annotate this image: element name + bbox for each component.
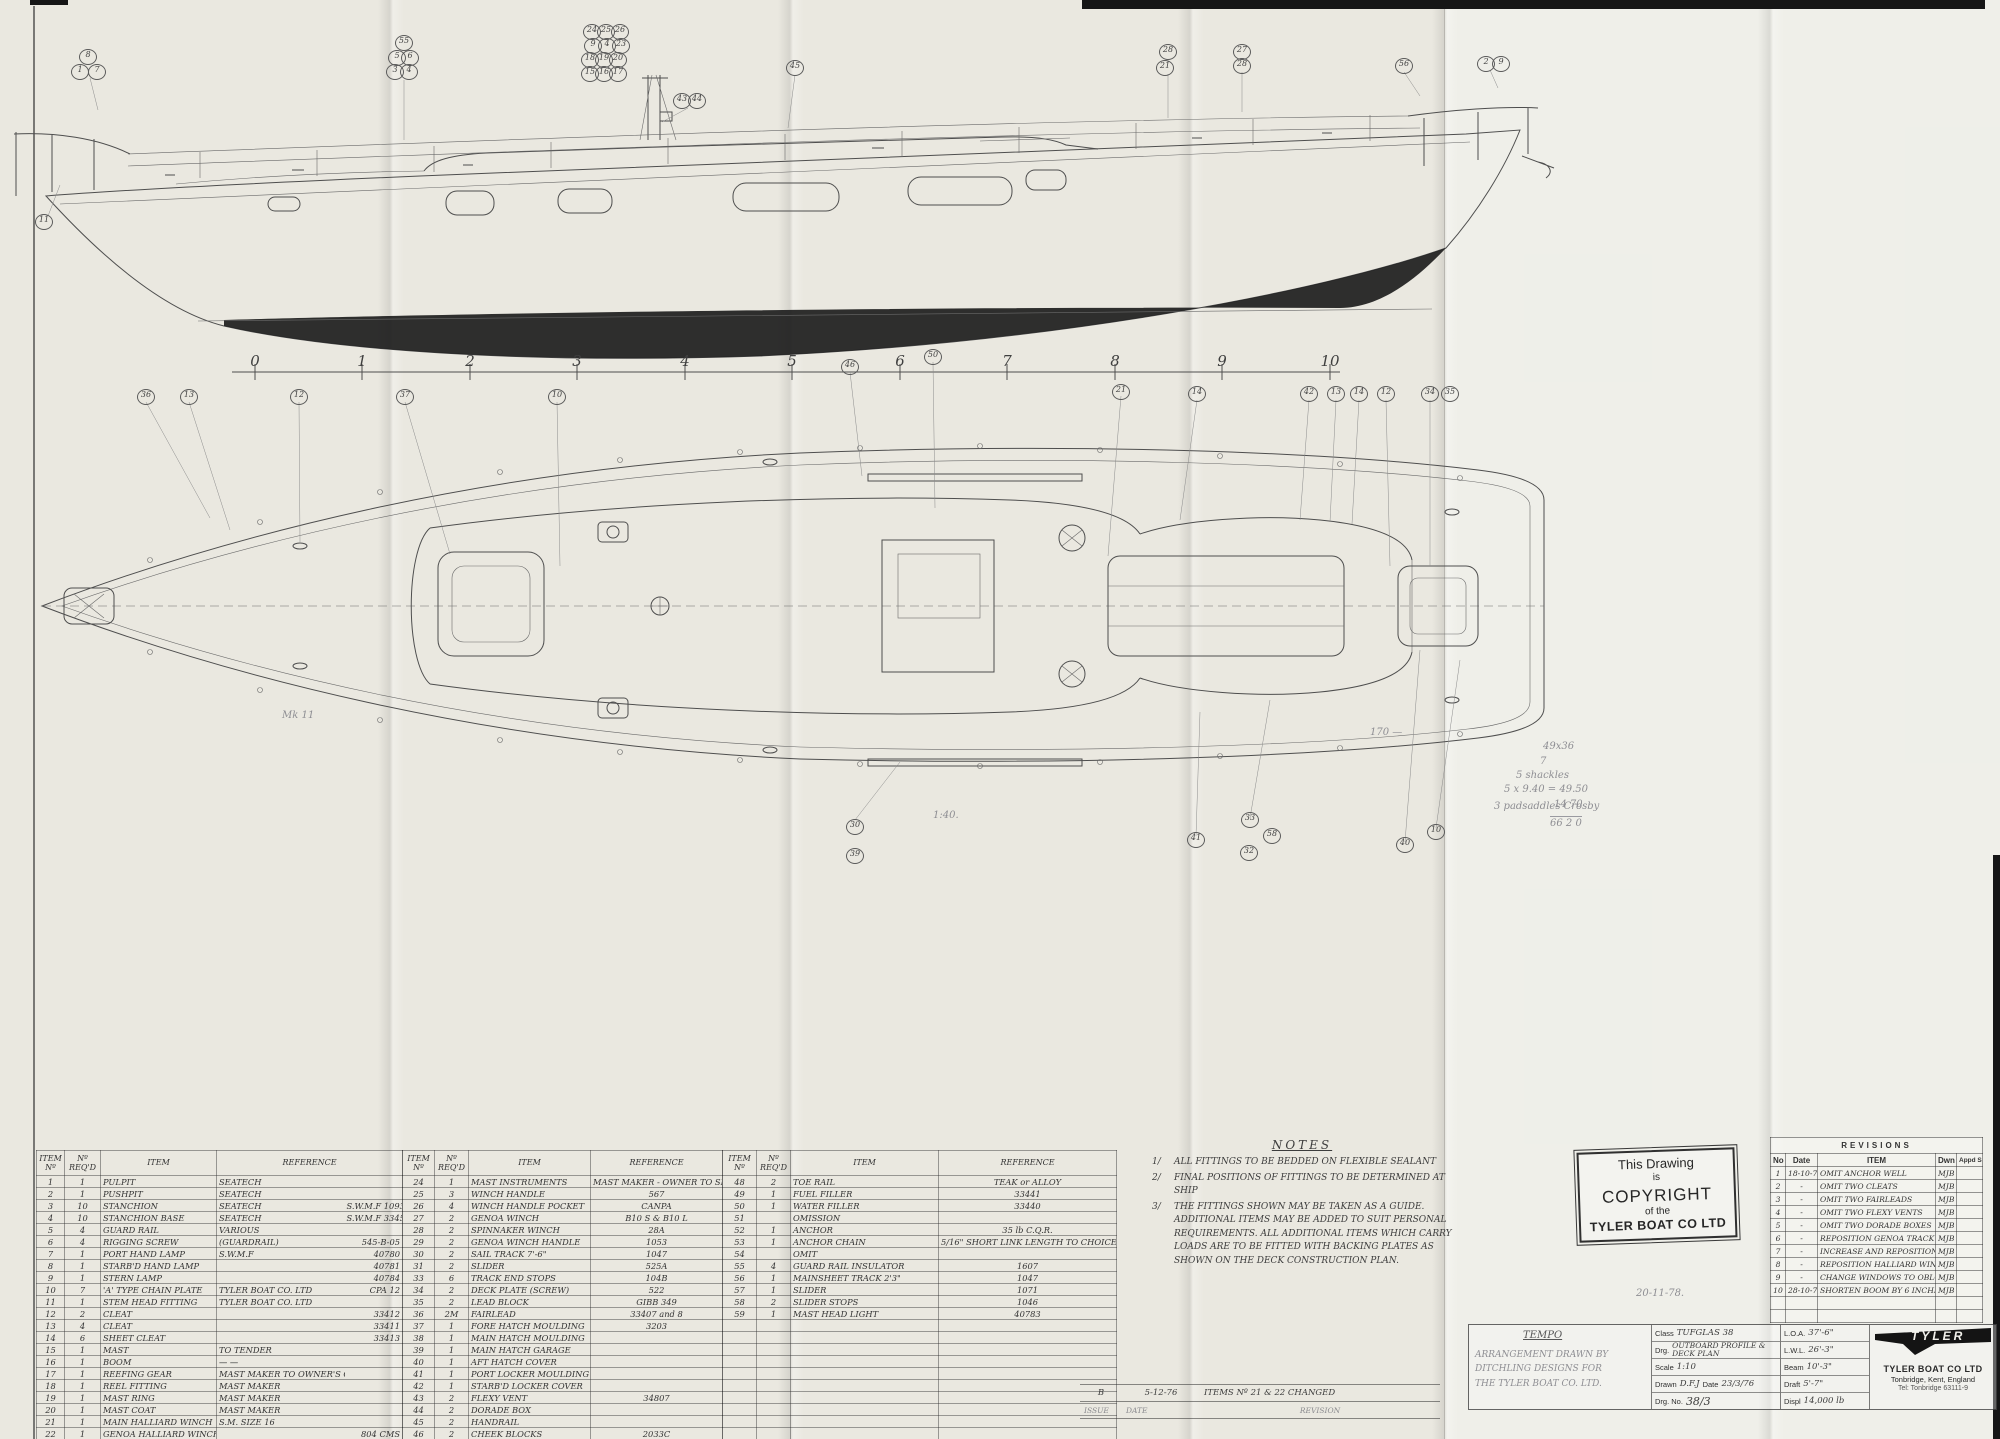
- cell-item-no: 40: [403, 1356, 435, 1368]
- rev-cell-dwn: MJB: [1936, 1219, 1957, 1232]
- cell-item-no: [723, 1416, 757, 1428]
- cell-item: [791, 1320, 939, 1332]
- cell-reference: SEATECH: [217, 1176, 345, 1188]
- cell-qty: [757, 1368, 791, 1380]
- cell-reference: S.W.M.F: [217, 1248, 345, 1260]
- date-label: Date: [1703, 1380, 1719, 1389]
- cell-item: ANCHOR CHAIN: [791, 1236, 939, 1248]
- table-row: [723, 1428, 1117, 1439]
- cell-item-no: 41: [403, 1368, 435, 1380]
- cell-item-no: 7: [37, 1248, 65, 1260]
- revision-row: 3 - OMIT TWO FAIRLEADS MJB: [1771, 1193, 1983, 1206]
- revision-row: 9 - CHANGE WINDOWS TO OBLONG TYPE MJB: [1771, 1271, 1983, 1284]
- notes-section: NOTES 1/ ALL FITTINGS TO BE BEDDED ON FL…: [1152, 1138, 1452, 1270]
- cell-qty: 1: [757, 1200, 791, 1212]
- rev-cell-no: 1: [1771, 1167, 1786, 1180]
- table-row: 54 OMIT: [723, 1248, 1117, 1260]
- balloon-callout: 8: [79, 49, 97, 65]
- cell-reference: [939, 1212, 1117, 1224]
- cell-qty: 1: [65, 1188, 101, 1200]
- rev-cell-no: 10: [1771, 1284, 1786, 1297]
- ruler-number: 7: [1002, 352, 1012, 370]
- balloon-callout: 28: [1159, 44, 1177, 60]
- cell-item: MAST COAT: [101, 1404, 217, 1416]
- note-text: ALL FITTINGS TO BE BEDDED ON FLEXIBLE SE…: [1174, 1156, 1436, 1170]
- pencil-note: 5 shackles: [1516, 770, 1569, 781]
- cell-item-no: [723, 1428, 757, 1439]
- cell-item-no: [723, 1404, 757, 1416]
- cell-qty: 1: [757, 1272, 791, 1284]
- cell-qty: 3: [435, 1188, 469, 1200]
- cell-item-no: 59: [723, 1308, 757, 1320]
- revisions-title: REVISIONS: [1771, 1138, 1983, 1154]
- rev-cell-appd: [1957, 1180, 1983, 1193]
- table-row: 46 2 CHEEK BLOCKS 2033C: [403, 1428, 723, 1439]
- cell-item: GENOA WINCH: [469, 1212, 591, 1224]
- rev-col-item: ITEM: [1818, 1154, 1936, 1167]
- deck-plan-drawing: [0, 350, 1560, 890]
- table-row: 16 1 BOOM — —: [37, 1356, 403, 1368]
- cell-qty: 2: [435, 1416, 469, 1428]
- cell-item-no: 10: [37, 1284, 65, 1296]
- cell-item-no: 26: [403, 1200, 435, 1212]
- cell-qty: 1: [435, 1356, 469, 1368]
- col-header-item: ITEM: [101, 1151, 217, 1176]
- cell-reference: 525A: [591, 1260, 723, 1272]
- ruler-number: 9: [1217, 352, 1227, 370]
- balloon-callout: 39: [846, 848, 864, 864]
- table-row: 45 2 HANDRAIL: [403, 1416, 723, 1428]
- rev-cell-no: 4: [1771, 1206, 1786, 1219]
- cell-qty: 1: [65, 1344, 101, 1356]
- table-row: 53 1 ANCHOR CHAIN 5/16" SHORT LINK LENGT…: [723, 1236, 1117, 1248]
- cell-reference-no: [345, 1416, 403, 1428]
- cell-item: SLIDER: [791, 1284, 939, 1296]
- draft-value: 5'-7": [1803, 1379, 1823, 1389]
- table-row: 31 2 SLIDER 525A: [403, 1260, 723, 1272]
- cell-item: GUARD RAIL: [101, 1224, 217, 1236]
- revision-row: 4 - OMIT TWO FLEXY VENTS MJB: [1771, 1206, 1983, 1219]
- ruler-number: 4: [680, 352, 690, 370]
- table-row: 20 1 MAST COAT MAST MAKER: [37, 1404, 403, 1416]
- cell-qty: 1: [65, 1392, 101, 1404]
- table-row: [723, 1392, 1117, 1404]
- cell-qty: [757, 1404, 791, 1416]
- lwl-value: 26'-3": [1808, 1345, 1833, 1355]
- cell-qty: [757, 1344, 791, 1356]
- cell-reference-no: [345, 1296, 403, 1308]
- cell-item-no: 45: [403, 1416, 435, 1428]
- cell-reference-no: 33412: [345, 1308, 403, 1320]
- table-header-row: ITEM Nº Nº REQ'D ITEM REFERENCE: [403, 1151, 723, 1176]
- note-line: 2/ FINAL POSITIONS OF FITTINGS TO BE DET…: [1152, 1172, 1452, 1199]
- cell-qty: 1: [65, 1260, 101, 1272]
- table-row: [723, 1320, 1117, 1332]
- title-block-project-cell: TEMPO ARRANGEMENT DRAWN BYDITCHLING DESI…: [1469, 1325, 1652, 1409]
- rev-cell-date: -: [1786, 1206, 1818, 1219]
- cell-item-no: 48: [723, 1176, 757, 1188]
- cell-qty: 4: [65, 1320, 101, 1332]
- pencil-note: 1:40.: [933, 810, 959, 821]
- cell-reference-no: [345, 1188, 403, 1200]
- draft-row: Draft 5'-7": [1781, 1376, 1869, 1393]
- cell-qty: 2: [435, 1404, 469, 1416]
- item-table-1: ITEM Nº Nº REQ'D ITEM REFERENCE 1 1 PULP…: [36, 1150, 403, 1439]
- rev-cell-item: OMIT TWO FAIRLEADS: [1818, 1193, 1936, 1206]
- rev-cell-appd: [1957, 1206, 1983, 1219]
- cell-reference: VARIOUS: [217, 1224, 345, 1236]
- cell-item: MAST: [101, 1344, 217, 1356]
- cell-qty: 1: [757, 1308, 791, 1320]
- cell-reference-no: [345, 1368, 403, 1380]
- pencil-note: 49x36: [1543, 741, 1574, 752]
- table-row: 51 OMISSION: [723, 1212, 1117, 1224]
- rev-cell-dwn: [1936, 1310, 1957, 1323]
- cell-item: PUSHPIT: [101, 1188, 217, 1200]
- cell-item: STERN LAMP: [101, 1272, 217, 1284]
- cell-item-no: 30: [403, 1248, 435, 1260]
- cell-reference: (GUARDRAIL): [217, 1236, 345, 1248]
- rev-cell-date: -: [1786, 1271, 1818, 1284]
- cell-item: CLEAT: [101, 1320, 217, 1332]
- cell-qty: 1: [435, 1380, 469, 1392]
- cell-qty: [757, 1416, 791, 1428]
- cell-qty: [757, 1428, 791, 1439]
- cell-item: [791, 1380, 939, 1392]
- profile-view-drawing: [0, 20, 1560, 360]
- table-row: [723, 1344, 1117, 1356]
- balloon-callout: 12: [1377, 386, 1395, 402]
- balloon-callout: 56: [1395, 58, 1413, 74]
- rev-cell-date: -: [1786, 1219, 1818, 1232]
- cell-item-no: 21: [37, 1416, 65, 1428]
- issue-values-row: B 5-12-76 ITEMS Nº 21 & 22 CHANGED: [1080, 1385, 1440, 1402]
- note-number: 1/: [1152, 1156, 1166, 1170]
- class-value: TUFGLAS 38: [1677, 1328, 1734, 1338]
- cell-item: [791, 1416, 939, 1428]
- balloon-callout: 4: [400, 64, 418, 80]
- pencil-note: 5 x 9.40 = 49.50: [1504, 784, 1588, 795]
- drawn-label: Drawn: [1655, 1380, 1677, 1389]
- balloon-callout: 9: [1492, 56, 1510, 72]
- scale-ruler-numbers: 012345678910: [0, 352, 1560, 372]
- cell-reference: TO TENDER: [217, 1344, 345, 1356]
- cell-qty: 2M: [435, 1308, 469, 1320]
- rev-col-appd: Appd S A: [1957, 1154, 1983, 1167]
- cell-qty: 1: [65, 1428, 101, 1439]
- ruler-number: 2: [465, 352, 475, 370]
- table-row: 5 4 GUARD RAIL VARIOUS: [37, 1224, 403, 1236]
- cell-item: AFT HATCH COVER: [469, 1356, 591, 1368]
- cell-qty: 1: [757, 1224, 791, 1236]
- cell-reference: [217, 1260, 345, 1272]
- table-row: 36 2M FAIRLEAD 33407 and 8: [403, 1308, 723, 1320]
- cell-item-no: 6: [37, 1236, 65, 1248]
- cell-reference: 1071: [939, 1284, 1117, 1296]
- cell-reference: 33441: [939, 1188, 1117, 1200]
- cell-reference: [939, 1368, 1117, 1380]
- rev-cell-dwn: MJB: [1936, 1180, 1957, 1193]
- ruler-number: 8: [1110, 352, 1120, 370]
- rev-cell-item: REPOSITION GENOA TRACK: [1818, 1232, 1936, 1245]
- beam-label: Beam: [1784, 1363, 1804, 1372]
- cell-item: MAST HEAD LIGHT: [791, 1308, 939, 1320]
- balloon-callout: 44: [688, 93, 706, 109]
- cell-item-no: 4: [37, 1212, 65, 1224]
- col-header-item-no: ITEM Nº: [723, 1151, 757, 1176]
- cell-item-no: 28: [403, 1224, 435, 1236]
- cell-reference: 34807: [591, 1392, 723, 1404]
- ruler-number: 1: [357, 352, 367, 370]
- cell-qty: 10: [65, 1200, 101, 1212]
- cell-item-no: 5: [37, 1224, 65, 1236]
- rev-cell-date: 18-10-71: [1786, 1167, 1818, 1180]
- pencil-note: 14 70: [1554, 799, 1583, 810]
- cell-qty: 4: [757, 1260, 791, 1272]
- cell-item: FLEXY VENT: [469, 1392, 591, 1404]
- cell-reference: MAST MAKER: [217, 1392, 345, 1404]
- table-row: 33 6 TRACK END STOPS 104B: [403, 1272, 723, 1284]
- table-row: 44 2 DORADE BOX: [403, 1404, 723, 1416]
- rev-cell-no: 8: [1771, 1258, 1786, 1271]
- loa-value: 37'-6": [1808, 1328, 1833, 1338]
- rev-col-date: Date: [1786, 1154, 1818, 1167]
- rev-cell-item: OMIT TWO DORADE BOXES: [1818, 1219, 1936, 1232]
- cell-reference: [939, 1356, 1117, 1368]
- table-row: 24 1 MAST INSTRUMENTS MAST MAKER - OWNER…: [403, 1176, 723, 1188]
- cell-item: DORADE BOX: [469, 1404, 591, 1416]
- table-row: 48 2 TOE RAIL TEAK or ALLOY: [723, 1176, 1117, 1188]
- rev-cell-item: INCREASE AND REPOSITION STANCH'NS: [1818, 1245, 1936, 1258]
- title-block-company: TYLER TYLER BOAT CO LTD Tonbridge, Kent,…: [1870, 1325, 1996, 1409]
- cell-item: GENOA HALLIARD WINCH: [101, 1428, 217, 1439]
- cell-item-no: 46: [403, 1428, 435, 1439]
- cell-qty: 1: [757, 1236, 791, 1248]
- cell-qty: 6: [65, 1332, 101, 1344]
- drg-no-row: Drg. No. 38/3: [1652, 1393, 1780, 1409]
- rev-cell-no: [1771, 1297, 1786, 1310]
- cell-reference: CANPA: [591, 1200, 723, 1212]
- cell-qty: 2: [435, 1236, 469, 1248]
- cell-reference: 104B: [591, 1272, 723, 1284]
- class-label: Class: [1655, 1329, 1674, 1338]
- cell-reference-no: 545-B-05: [345, 1236, 403, 1248]
- rev-cell-no: 3: [1771, 1193, 1786, 1206]
- balloon-callout: 14: [1350, 386, 1368, 402]
- cell-reference: [217, 1332, 345, 1344]
- revision-row: [1771, 1310, 1983, 1323]
- cell-item-no: 22: [37, 1428, 65, 1439]
- cell-qty: 4: [65, 1224, 101, 1236]
- balloon-callout: 50: [924, 349, 942, 365]
- cell-qty: 6: [435, 1272, 469, 1284]
- drg-row: Drg. OUTBOARD PROFILE & DECK PLAN: [1652, 1342, 1780, 1359]
- table-row: 59 1 MAST HEAD LIGHT 40783: [723, 1308, 1117, 1320]
- cell-item: STANCHION BASE: [101, 1212, 217, 1224]
- balloon-callout: 1: [71, 64, 89, 80]
- cell-item-no: 27: [403, 1212, 435, 1224]
- cell-reference: 1607: [939, 1260, 1117, 1272]
- pencil-note: 7: [1540, 756, 1546, 767]
- revision-row: 5 - OMIT TWO DORADE BOXES MJB: [1771, 1219, 1983, 1232]
- table-row: 17 1 REEFING GEAR MAST MAKER TO OWNER'S …: [37, 1368, 403, 1380]
- col-header-reference: REFERENCE: [217, 1151, 403, 1176]
- cell-item: 'A' TYPE CHAIN PLATE: [101, 1284, 217, 1296]
- company-name: TYLER BOAT CO LTD: [1870, 1364, 1996, 1374]
- balloon-callout: 36: [137, 389, 155, 405]
- cell-item-no: [723, 1368, 757, 1380]
- cell-item: STANCHION: [101, 1200, 217, 1212]
- cell-qty: [757, 1356, 791, 1368]
- issue-date-value: 5-12-76: [1122, 1385, 1200, 1402]
- table-row: 12 2 CLEAT 33412: [37, 1308, 403, 1320]
- balloon-callout: 21: [1112, 384, 1130, 400]
- rev-cell-dwn: MJB: [1936, 1232, 1957, 1245]
- cell-item-no: 50: [723, 1200, 757, 1212]
- rev-cell-appd: [1957, 1271, 1983, 1284]
- cell-reference: [939, 1248, 1117, 1260]
- cell-item-no: 9: [37, 1272, 65, 1284]
- drawing-sheet: 012345678910 817115556342425269423181920…: [0, 0, 2000, 1439]
- rev-cell-no: 2: [1771, 1180, 1786, 1193]
- rev-cell-item: [1818, 1297, 1936, 1310]
- rev-cell-date: -: [1786, 1232, 1818, 1245]
- revisions-title-row: REVISIONS: [1771, 1138, 1983, 1154]
- cell-qty: 2: [435, 1392, 469, 1404]
- rev-cell-item: OMIT TWO FLEXY VENTS: [1818, 1206, 1936, 1219]
- ruler-number: 6: [895, 352, 905, 370]
- issue-date-label: DATE: [1122, 1402, 1200, 1419]
- cell-reference: SEATECH: [217, 1212, 345, 1224]
- cell-item-no: 11: [37, 1296, 65, 1308]
- revision-row: [1771, 1297, 1983, 1310]
- cell-item-no: 43: [403, 1392, 435, 1404]
- ruler-number: 5: [787, 352, 797, 370]
- cell-item-no: 3: [37, 1200, 65, 1212]
- balloon-callout: 45: [786, 60, 804, 76]
- table-row: 4 10 STANCHION BASE SEATECH S.W.M.F 3345…: [37, 1212, 403, 1224]
- cell-reference: TYLER BOAT CO. LTD: [217, 1296, 345, 1308]
- cell-item: GENOA WINCH HANDLE: [469, 1236, 591, 1248]
- cell-item-no: 19: [37, 1392, 65, 1404]
- cell-qty: 2: [435, 1212, 469, 1224]
- cell-item-no: 51: [723, 1212, 757, 1224]
- cell-item: SHEET CLEAT: [101, 1332, 217, 1344]
- table-row: 19 1 MAST RING MAST MAKER: [37, 1392, 403, 1404]
- balloon-callout: 42: [1300, 386, 1318, 402]
- cell-reference: [591, 1332, 723, 1344]
- table-row: 42 1 STARB'D LOCKER COVER: [403, 1380, 723, 1392]
- table-row: 52 1 ANCHOR 35 lb C.Q.R.: [723, 1224, 1117, 1236]
- cell-reference: [591, 1356, 723, 1368]
- cell-qty: 4: [65, 1236, 101, 1248]
- cell-item: SAIL TRACK 7'-6": [469, 1248, 591, 1260]
- cell-item-no: 38: [403, 1332, 435, 1344]
- cell-item-no: 49: [723, 1188, 757, 1200]
- lwl-row: L.W.L. 26'-3": [1781, 1342, 1869, 1359]
- revision-row: 2 - OMIT TWO CLEATS MJB: [1771, 1180, 1983, 1193]
- cell-item: TRACK END STOPS: [469, 1272, 591, 1284]
- cell-reference: [591, 1416, 723, 1428]
- balloon-callout: 11: [35, 214, 53, 230]
- cell-item-no: 42: [403, 1380, 435, 1392]
- rev-cell-date: -: [1786, 1193, 1818, 1206]
- issue-revision-value: ITEMS Nº 21 & 22 CHANGED: [1200, 1385, 1440, 1402]
- cell-qty: 1: [757, 1188, 791, 1200]
- cell-qty: [757, 1392, 791, 1404]
- cell-item-no: 20: [37, 1404, 65, 1416]
- drg-no-label: Drg. No.: [1655, 1397, 1683, 1406]
- company-address: Tonbridge, Kent, England: [1870, 1375, 1996, 1384]
- cell-qty: 1: [435, 1368, 469, 1380]
- cell-qty: 1: [65, 1404, 101, 1416]
- balloon-callout: 10: [548, 389, 566, 405]
- cell-item-no: 33: [403, 1272, 435, 1284]
- cell-item: FORE HATCH MOULDING: [469, 1320, 591, 1332]
- issue-value: B: [1080, 1385, 1122, 1402]
- cell-item: [791, 1344, 939, 1356]
- table-row: 3 10 STANCHION SEATECH S.W.M.F 1093: [37, 1200, 403, 1212]
- cell-qty: 1: [65, 1380, 101, 1392]
- cell-reference: — —: [217, 1356, 345, 1368]
- cell-reference-no: [345, 1380, 403, 1392]
- note-line: 3/ THE FITTINGS SHOWN MAY BE TAKEN AS A …: [1152, 1201, 1452, 1269]
- revision-row: 1 18-10-71 OMIT ANCHOR WELL MJB: [1771, 1167, 1983, 1180]
- balloon-callout: 40: [1396, 837, 1414, 853]
- cell-item: WATER FILLER: [791, 1200, 939, 1212]
- cell-qty: 2: [757, 1296, 791, 1308]
- cell-qty: 2: [757, 1176, 791, 1188]
- cell-qty: 1: [65, 1368, 101, 1380]
- drg-value-line2: DECK PLAN: [1672, 1349, 1719, 1358]
- cell-item-no: 24: [403, 1176, 435, 1188]
- cell-item: OMIT: [791, 1248, 939, 1260]
- cell-item: STEM HEAD FITTING: [101, 1296, 217, 1308]
- table-row: 49 1 FUEL FILLER 33441: [723, 1188, 1117, 1200]
- cell-item: WINCH HANDLE POCKET: [469, 1200, 591, 1212]
- cell-reference: 1047: [591, 1248, 723, 1260]
- table-row: 13 4 CLEAT 33411: [37, 1320, 403, 1332]
- cell-reference-no: [345, 1344, 403, 1356]
- cell-qty: 1: [65, 1248, 101, 1260]
- cell-reference: SEATECH: [217, 1200, 345, 1212]
- rev-cell-item: [1818, 1310, 1936, 1323]
- balloon-callout: 30: [846, 819, 864, 835]
- cell-qty: 2: [435, 1224, 469, 1236]
- table-row: 10 7 'A' TYPE CHAIN PLATE TYLER BOAT CO.…: [37, 1284, 403, 1296]
- cell-reference-no: 33413: [345, 1332, 403, 1344]
- cell-item-no: [723, 1320, 757, 1332]
- cell-item-no: [723, 1380, 757, 1392]
- rev-cell-date: -: [1786, 1258, 1818, 1271]
- cell-reference: MAST MAKER - OWNER TO SPECIFY: [591, 1176, 723, 1188]
- cell-qty: 4: [435, 1200, 469, 1212]
- copyright-stamp: This Drawing is COPYRIGHT of the TYLER B…: [1576, 1147, 1737, 1242]
- balloon-callout: 7: [88, 64, 106, 80]
- cell-reference: 40783: [939, 1308, 1117, 1320]
- revision-row: 6 - REPOSITION GENOA TRACK MJB: [1771, 1232, 1983, 1245]
- rev-cell-dwn: MJB: [1936, 1193, 1957, 1206]
- cell-qty: 1: [757, 1284, 791, 1296]
- balloon-callout: 13: [1327, 386, 1345, 402]
- cell-item-no: 58: [723, 1296, 757, 1308]
- rev-cell-appd: [1957, 1245, 1983, 1258]
- notes-title: NOTES: [1152, 1138, 1452, 1152]
- cell-item-no: 44: [403, 1404, 435, 1416]
- cell-reference: 33407 and 8: [591, 1308, 723, 1320]
- col-header-item-no: ITEM Nº: [37, 1151, 65, 1176]
- cell-reference: [591, 1380, 723, 1392]
